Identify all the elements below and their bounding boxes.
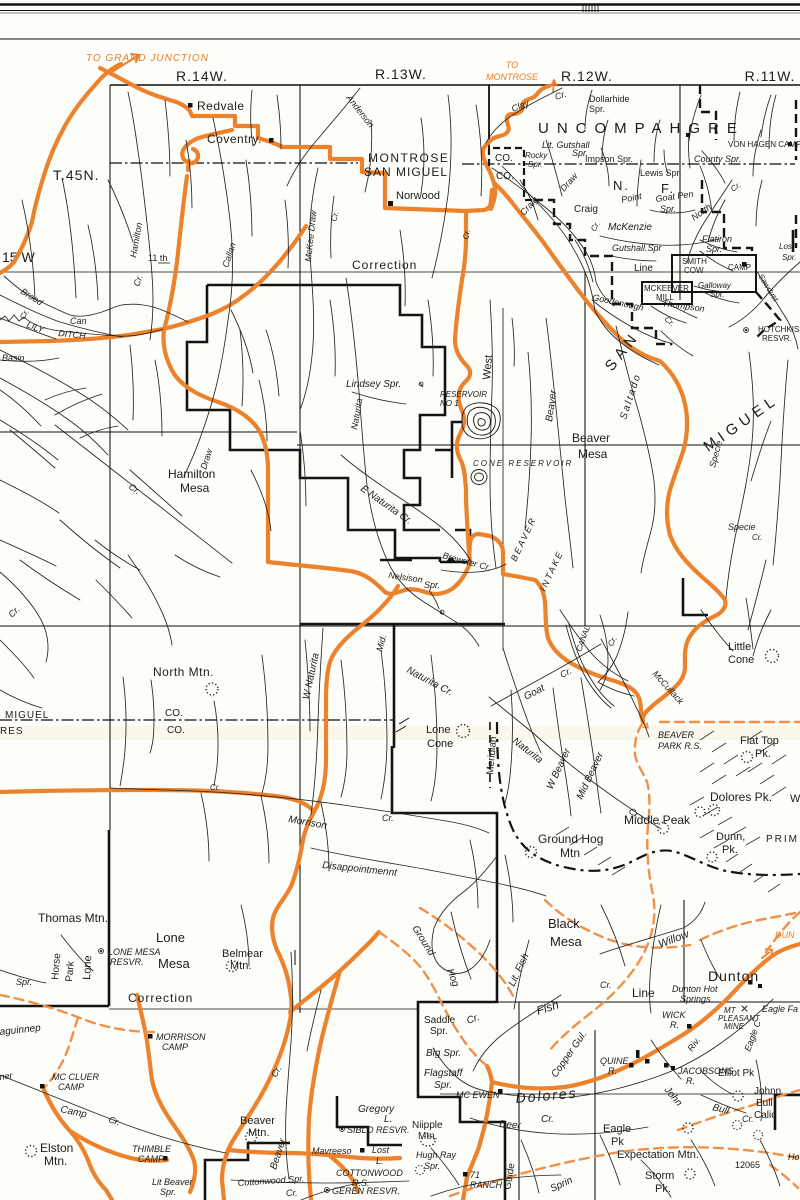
svg-text:Beaver: Beaver [572, 431, 610, 445]
svg-text:R.14W.: R.14W. [176, 68, 228, 84]
svg-text:Line: Line [632, 986, 655, 1000]
svg-text:Expectation Mtn.: Expectation Mtn. [617, 1149, 699, 1161]
svg-text:Niipple: Niipple [412, 1120, 443, 1131]
svg-text:Spr.: Spr. [434, 1080, 452, 1091]
svg-text:PRIM: PRIM [766, 834, 799, 845]
svg-text:Cr.: Cr. [600, 980, 612, 990]
svg-text:Ground Hog: Ground Hog [538, 832, 603, 846]
svg-text:Dunton: Dunton [708, 968, 759, 984]
svg-text:Basin: Basin [2, 353, 25, 363]
svg-text:Lewis Spr.: Lewis Spr. [640, 168, 682, 178]
svg-text:Little: Little [728, 641, 751, 653]
svg-text:HOTCHKISS: HOTCHKISS [758, 325, 800, 334]
svg-text:MONTROSE: MONTROSE [486, 72, 539, 82]
svg-text:W: W [790, 793, 800, 805]
svg-text:Norwood: Norwood [396, 190, 440, 202]
svg-text:Specie: Specie [728, 522, 756, 532]
svg-text:RES: RES [0, 726, 24, 737]
svg-text:MINE: MINE [724, 1022, 745, 1031]
svg-text:Hamilton: Hamilton [168, 467, 215, 481]
svg-text:R.12W.: R.12W. [561, 68, 613, 84]
svg-text:Dunn,: Dunn, [716, 831, 745, 843]
svg-text:McKenzie: McKenzie [608, 222, 652, 233]
svg-text:Lost: Lost [372, 1145, 390, 1155]
svg-text:MORRISON: MORRISON [156, 1032, 206, 1042]
svg-text:Cr.: Cr. [541, 1114, 554, 1125]
svg-text:DUN: DUN [775, 930, 795, 940]
svg-text:Mtn.: Mtn. [44, 1154, 67, 1168]
svg-text:Mesa: Mesa [578, 447, 608, 461]
svg-text:COTTONWOOD: COTTONWOOD [336, 1168, 403, 1178]
svg-text:RESERVOIR: RESERVOIR [440, 390, 487, 399]
svg-text:Redvale: Redvale [197, 99, 245, 113]
svg-text:RESVR.: RESVR. [110, 957, 144, 967]
svg-text:Spr.: Spr. [528, 160, 542, 169]
svg-text:GEREN RESVR.: GEREN RESVR. [332, 1186, 400, 1196]
svg-text:Spr.: Spr. [706, 244, 722, 254]
svg-text:UNCOMPAHGRE: UNCOMPAHGRE [538, 120, 745, 137]
svg-text:Dunton Hot: Dunton Hot [672, 984, 718, 994]
svg-text:Cone: Cone [728, 654, 754, 666]
svg-text:Pk.: Pk. [755, 748, 771, 760]
svg-text:Spr.: Spr. [16, 977, 32, 987]
svg-text:County Spr.: County Spr. [694, 154, 741, 164]
svg-text:Beaver: Beaver [240, 1115, 275, 1127]
svg-text:TO: TO [506, 60, 518, 70]
svg-text:Pk.: Pk. [655, 1183, 671, 1195]
svg-text:SAN MIGUEL: SAN MIGUEL [364, 165, 448, 179]
svg-text:MC EWEN: MC EWEN [456, 1090, 500, 1100]
svg-text:Middle Peak: Middle Peak [624, 813, 691, 827]
svg-text:Lone: Lone [81, 955, 94, 980]
svg-text:Saddle: Saddle [424, 1015, 456, 1026]
svg-text:CO.: CO. [496, 171, 514, 182]
svg-text:Lit Beaver: Lit Beaver [152, 1177, 194, 1187]
svg-text:Mavreeso: Mavreeso [312, 1146, 352, 1156]
svg-text:R.: R. [670, 1020, 679, 1030]
svg-text:QUINE: QUINE [600, 1056, 630, 1066]
svg-text:PARK R.S.: PARK R.S. [658, 741, 702, 751]
svg-text:R.11W.: R.11W. [745, 68, 796, 84]
svg-text:71: 71 [470, 1170, 480, 1180]
svg-text:R.: R. [608, 1066, 617, 1076]
svg-text:Cr.: Cr. [752, 533, 762, 542]
svg-text:Black: Black [548, 916, 580, 931]
svg-text:Horse: Horse [50, 952, 63, 980]
svg-text:Cr.: Cr. [286, 1188, 298, 1198]
svg-text:CAMP: CAMP [58, 1082, 84, 1092]
svg-text:Spr.: Spr. [424, 1161, 440, 1171]
svg-text:12065: 12065 [735, 1160, 760, 1170]
svg-text:Impson Spr.: Impson Spr. [585, 154, 633, 164]
svg-text:Johnn: Johnn [754, 1086, 781, 1097]
svg-text:Flat Top: Flat Top [740, 735, 779, 747]
svg-text:CAMP: CAMP [728, 263, 751, 272]
svg-text:Pk.: Pk. [722, 844, 738, 856]
svg-text:Calic: Calic [754, 1110, 776, 1121]
svg-text:Springs: Springs [680, 994, 711, 1004]
svg-text:TO GRAND JUNCTION: TO GRAND JUNCTION [86, 53, 209, 64]
svg-text:Line: Line [634, 263, 653, 274]
svg-text:CONE RESERVOIR: CONE RESERVOIR [473, 459, 573, 468]
svg-text:Elliot Pk: Elliot Pk [718, 1068, 755, 1079]
svg-text:Lone: Lone [156, 930, 185, 945]
svg-text:T.45N.: T.45N. [53, 167, 99, 183]
svg-text:Hugh Ray: Hugh Ray [416, 1150, 457, 1160]
svg-text:Elston: Elston [40, 1141, 73, 1155]
svg-text:Correction: Correction [128, 991, 193, 1005]
svg-text:Cr.: Cr. [742, 1114, 754, 1124]
svg-text:SIBLO RESVR.: SIBLO RESVR. [347, 1125, 410, 1135]
svg-text:WICK: WICK [662, 1010, 686, 1020]
svg-text:Gutshall.Spr: Gutshall.Spr [612, 243, 663, 253]
svg-text:Mtn.: Mtn. [230, 960, 251, 972]
svg-text:Eagle: Eagle [603, 1123, 631, 1135]
svg-text:R.: R. [686, 1076, 695, 1086]
svg-text:Deer: Deer [499, 1119, 522, 1132]
svg-text:Mesa: Mesa [180, 481, 210, 495]
svg-text:Flatiron: Flatiron [702, 234, 732, 244]
svg-text:Can: Can [70, 316, 87, 326]
svg-text:Ho: Ho [788, 1152, 800, 1162]
svg-text:Galloway: Galloway [698, 281, 732, 290]
svg-text:L.: L. [376, 1156, 384, 1166]
svg-text:N.: N. [613, 178, 630, 193]
svg-text:Cr.: Cr. [210, 783, 220, 792]
svg-text:MCKEEVER: MCKEEVER [644, 284, 689, 293]
svg-text:Spr.: Spr. [782, 253, 796, 262]
svg-text:THIMBLE: THIMBLE [132, 1144, 172, 1154]
svg-text:CAMP: CAMP [162, 1042, 188, 1052]
svg-text:Pk: Pk [611, 1136, 624, 1148]
svg-text:Mtn.: Mtn. [418, 1131, 437, 1142]
svg-text:Lindsey Spr.: Lindsey Spr. [346, 379, 401, 390]
svg-text:Spr.: Spr. [589, 104, 605, 114]
svg-text:COW: COW [684, 266, 704, 275]
svg-text:Mtn.: Mtn. [248, 1127, 269, 1139]
svg-text:Flagstaff: Flagstaff [424, 1068, 464, 1079]
svg-text:NO 1: NO 1 [440, 399, 459, 408]
svg-text:Mtn: Mtn [560, 846, 580, 860]
svg-text:CO.: CO. [495, 153, 513, 164]
svg-text:L.: L. [384, 1114, 392, 1125]
svg-text:Dolores Pk.: Dolores Pk. [710, 790, 772, 804]
svg-text:Rocky: Rocky [525, 151, 548, 160]
svg-text:Craig: Craig [574, 204, 598, 215]
svg-text:Big Spr.: Big Spr. [426, 1048, 461, 1059]
svg-text:Lost: Lost [779, 242, 795, 251]
svg-text:Cr.: Cr. [382, 813, 394, 823]
svg-text:Correction: Correction [352, 258, 417, 272]
svg-text:SMITH: SMITH [682, 257, 707, 266]
svg-text:Lone: Lone [426, 724, 450, 736]
svg-text:Spr.: Spr. [424, 580, 440, 590]
svg-text:R.13W.: R.13W. [375, 66, 427, 82]
svg-text:Cone: Cone [427, 738, 453, 750]
svg-text:Eagle Fa: Eagle Fa [762, 1004, 798, 1014]
svg-text:Spr.: Spr. [430, 1026, 448, 1037]
svg-text:Dollarhide: Dollarhide [589, 94, 630, 104]
svg-text:CAMP: CAMP [138, 1154, 164, 1164]
svg-text:West: West [481, 354, 495, 380]
svg-text:Storm: Storm [645, 1170, 674, 1182]
svg-text:Coventry.: Coventry. [207, 132, 262, 146]
svg-text:MC CLUER: MC CLUER [52, 1072, 100, 1082]
svg-text:RESVR.: RESVR. [762, 334, 792, 343]
svg-text:Spr.: Spr. [660, 204, 676, 214]
svg-text:Thomas Mtn.: Thomas Mtn. [38, 911, 108, 925]
svg-text:North Mtn.: North Mtn. [153, 665, 214, 679]
svg-text:Mesa: Mesa [158, 956, 191, 971]
svg-text:Spr.: Spr. [710, 290, 724, 299]
svg-text:MONTROSE: MONTROSE [368, 151, 449, 165]
svg-text:LONE MESA: LONE MESA [108, 947, 161, 957]
svg-text:VON HAGEN CAMP: VON HAGEN CAMP [728, 140, 800, 149]
svg-text:CO.: CO. [165, 708, 183, 719]
svg-text:RANCH: RANCH [470, 1180, 503, 1190]
svg-text:BEAVER: BEAVER [658, 730, 695, 740]
svg-text:Park: Park [64, 960, 77, 982]
svg-text:Belmear: Belmear [222, 948, 263, 960]
svg-text:Spr.: Spr. [160, 1187, 176, 1197]
svg-text:Bull: Bull [756, 1098, 773, 1109]
svg-text:Mesa: Mesa [550, 934, 583, 949]
svg-text:CO.: CO. [167, 725, 185, 736]
svg-text:MIGUEL: MIGUEL [5, 710, 49, 721]
